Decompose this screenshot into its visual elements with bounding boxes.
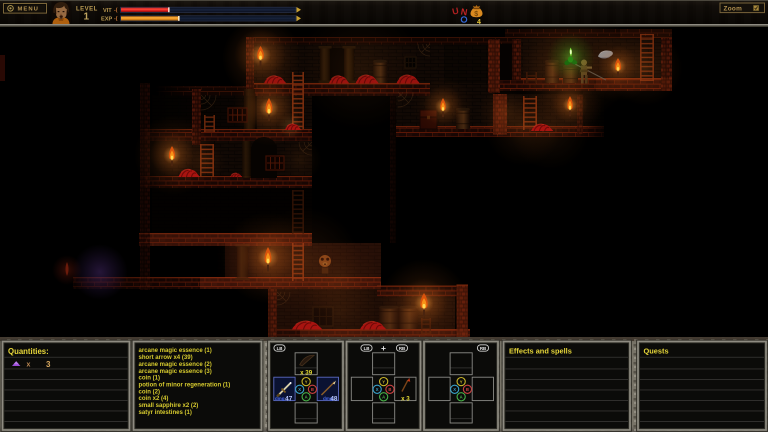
svg-text:VIT: VIT <box>103 8 112 14</box>
svg-text:3: 3 <box>46 360 51 369</box>
svg-text:x: x <box>27 362 31 369</box>
svg-text:-(: -( <box>114 16 118 22</box>
svg-text:B: B <box>311 387 314 392</box>
svg-text:coin (1): coin (1) <box>139 376 161 382</box>
svg-text:Y: Y <box>382 379 385 384</box>
svg-text:MENU: MENU <box>18 7 39 13</box>
svg-text:EXP: EXP <box>101 17 112 23</box>
svg-text:RB: RB <box>399 346 405 351</box>
svg-text:Zoom: Zoom <box>724 6 743 13</box>
svg-text:4: 4 <box>477 19 481 26</box>
svg-text:A: A <box>460 395 463 400</box>
svg-text:Quantities:: Quantities: <box>8 347 49 356</box>
svg-text:47: 47 <box>285 396 293 403</box>
svg-text:+: + <box>381 343 386 353</box>
svg-text:1: 1 <box>84 12 90 23</box>
svg-text:B: B <box>388 387 391 392</box>
svg-text:X: X <box>298 387 301 392</box>
svg-text:short arrow x4 (39): short arrow x4 (39) <box>139 355 193 361</box>
svg-text:48: 48 <box>330 396 338 403</box>
svg-text:LB: LB <box>364 346 370 351</box>
svg-text:x 39: x 39 <box>300 370 313 377</box>
svg-text:X: X <box>453 387 456 392</box>
svg-text:Effects and spells: Effects and spells <box>509 347 572 356</box>
svg-text:B: B <box>466 387 469 392</box>
svg-text:potion of minor regeneration (: potion of minor regeneration (1) <box>139 383 231 389</box>
svg-text:Quests: Quests <box>644 347 669 356</box>
svg-text:small sapphire x2 (2): small sapphire x2 (2) <box>139 403 199 409</box>
svg-text:Y: Y <box>305 379 308 384</box>
svg-text:-(: -( <box>114 8 118 14</box>
svg-text:coin (2): coin (2) <box>139 389 161 395</box>
svg-text:A: A <box>382 395 385 400</box>
svg-text:dmg: dmg <box>275 396 285 401</box>
svg-text:satyr intestines (1): satyr intestines (1) <box>139 410 192 416</box>
svg-text:A: A <box>305 395 308 400</box>
svg-text:X: X <box>376 387 379 392</box>
svg-text:RB: RB <box>480 346 486 351</box>
svg-text:arcane magic essence (2): arcane magic essence (2) <box>139 362 212 368</box>
svg-text:LB: LB <box>277 346 283 351</box>
svg-text:$: $ <box>474 11 478 18</box>
svg-text:arcane magic essence (1): arcane magic essence (1) <box>139 348 212 354</box>
svg-text:arcane magic essence (3): arcane magic essence (3) <box>139 369 212 375</box>
svg-text:coin x2 (4): coin x2 (4) <box>139 396 169 402</box>
svg-text:x 3: x 3 <box>401 395 410 402</box>
svg-text:Y: Y <box>460 379 463 384</box>
